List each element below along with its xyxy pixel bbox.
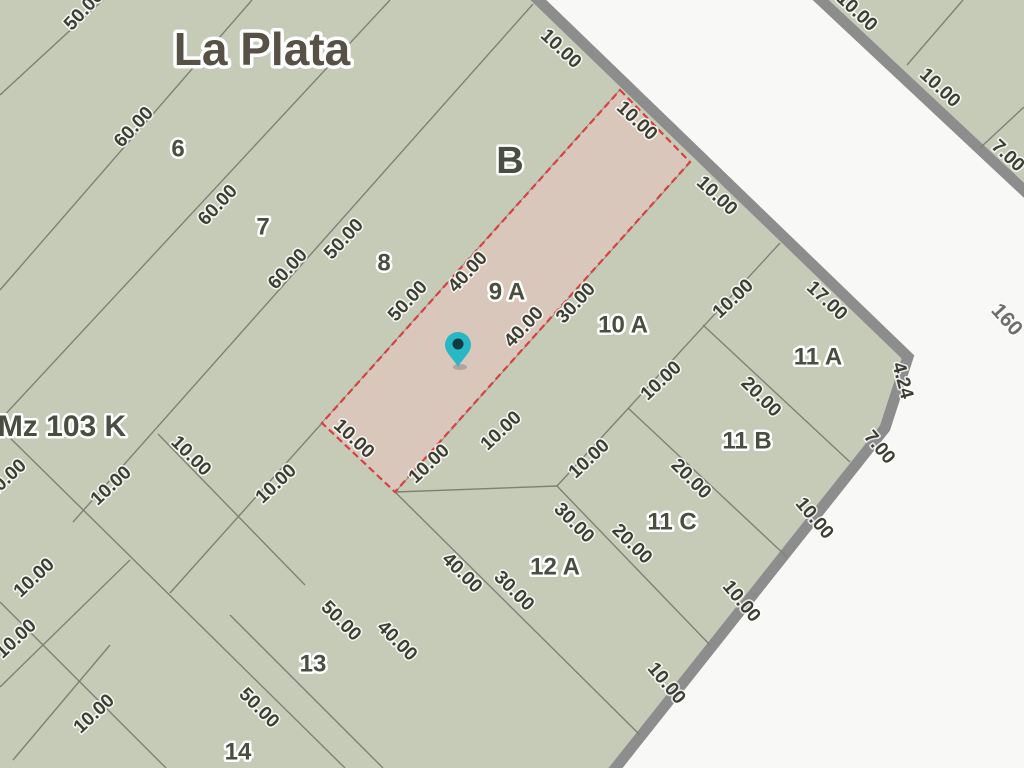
block-letter: B [496,140,523,182]
parcel-label: 8 [377,249,390,276]
parcel-label: 7 [256,213,269,240]
parcel-label: 6 [171,135,184,162]
cadastral-map[interactable]: 50.0060.0060.0060.0050.0050.0040.0040.00… [0,0,1024,768]
parcel-label: 11 C [647,508,696,535]
parcel-label: 13 [300,650,327,677]
street-number: 160 [987,299,1024,340]
parcel-label: 14 [225,738,252,765]
opposite-block [810,0,1024,206]
block-id: Mz 103 K [0,410,127,443]
parcel-label: 12 A [530,553,580,580]
parcel-label: 10 A [598,311,648,338]
parcel-label: 11 A [794,343,842,370]
city-title: La Plata [174,23,351,75]
parcel-label: 9 A [489,278,525,305]
parcel-label: 11 B [722,427,771,454]
map-canvas[interactable]: 50.0060.0060.0060.0050.0050.0040.0040.00… [0,0,1024,768]
